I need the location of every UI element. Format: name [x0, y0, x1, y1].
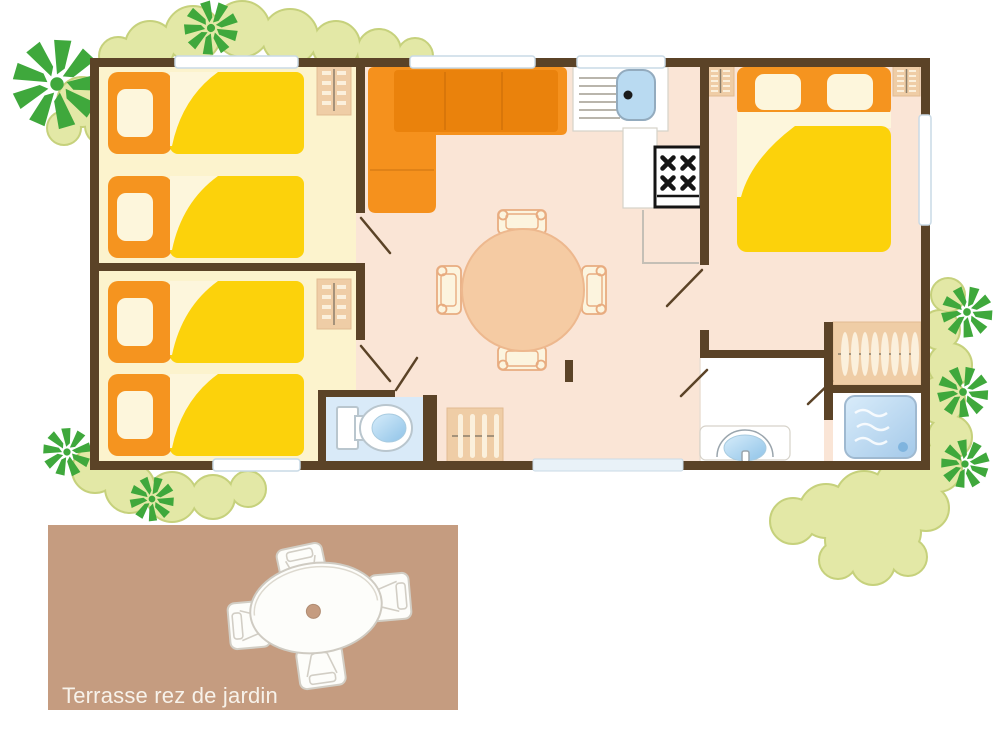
nightstand: [893, 66, 920, 96]
floor-plan-svg: Terrasse rez de jardin: [0, 0, 1000, 734]
window: [213, 459, 300, 471]
nightstand: [707, 66, 734, 96]
wall-kitchen: [700, 58, 709, 265]
wall-bedroom-divider: [90, 263, 365, 271]
wall-wardrobe: [824, 322, 833, 385]
faucet: [742, 451, 749, 462]
wall-wc-left: [318, 390, 326, 461]
kitchen-counter-side: [623, 128, 657, 208]
stove: [655, 147, 701, 207]
wall-shower-left: [824, 393, 833, 420]
wall-bedrooms: [356, 58, 365, 213]
kitchen-sink: [617, 70, 655, 120]
shower: [845, 396, 916, 458]
building: [90, 56, 931, 471]
dining-chair: [582, 266, 606, 314]
wall-wc-top: [318, 390, 395, 397]
wc-room: [326, 397, 423, 461]
wall-bathroom-top: [700, 350, 833, 358]
dining-chair: [437, 266, 461, 314]
window: [919, 115, 931, 225]
shelf-unit: [317, 279, 351, 329]
wall-stub: [565, 360, 573, 382]
wall-shower-top: [824, 385, 930, 393]
entry-door: [533, 459, 683, 471]
wall-bedrooms: [356, 263, 365, 340]
wall-bottom-right: [683, 461, 930, 470]
double-bed: [737, 67, 891, 252]
shelf-unit: [317, 65, 351, 115]
wall-wc-right: [423, 395, 437, 461]
twin-bed: [108, 72, 304, 154]
wall-bottom-left: [90, 461, 533, 470]
terrace-label: Terrasse rez de jardin: [62, 683, 278, 708]
toilet: [337, 405, 412, 451]
dining-table: [462, 229, 584, 351]
floor-plan-page: Terrasse rez de jardin: [0, 0, 1000, 734]
shower-drain: [898, 442, 908, 452]
wardrobe: [833, 322, 921, 385]
twin-bed: [108, 281, 304, 363]
window: [410, 56, 535, 68]
washbasin: [700, 426, 790, 462]
sink-drain: [624, 91, 633, 100]
window: [577, 56, 665, 68]
window: [175, 56, 298, 68]
twin-bed: [108, 176, 304, 258]
terrace: Terrasse rez de jardin: [48, 525, 458, 710]
radiator: [447, 408, 503, 462]
twin-bed: [108, 374, 304, 456]
